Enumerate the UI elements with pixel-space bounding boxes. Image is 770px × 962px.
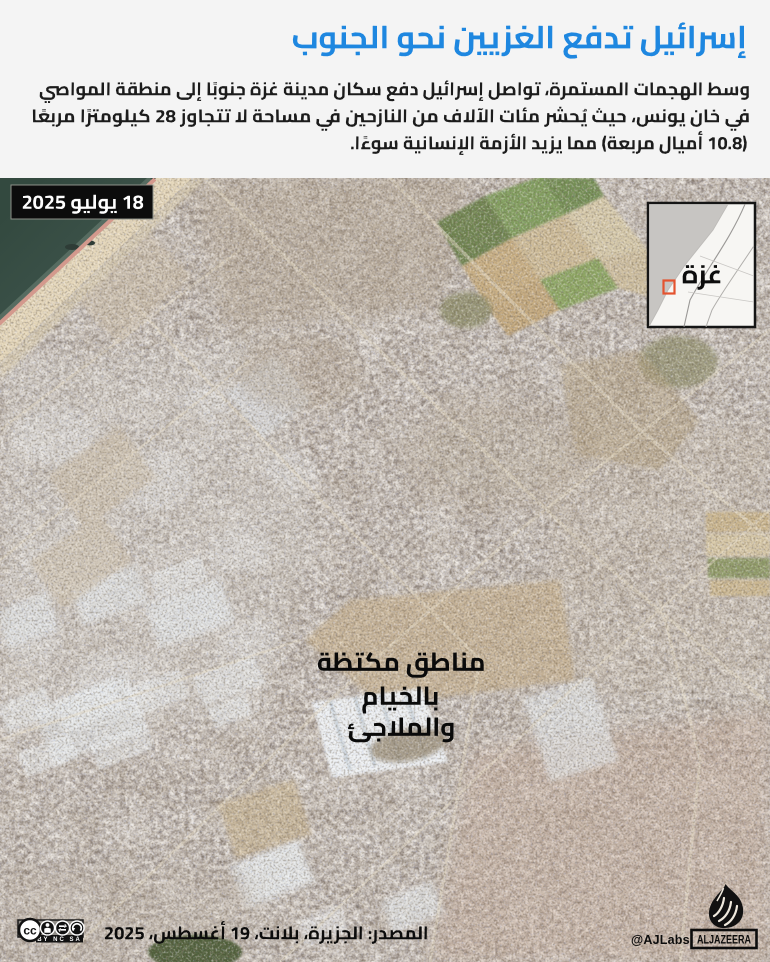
svg-text:ALJAZEERA: ALJAZEERA (697, 933, 751, 947)
svg-text:@AJLabs: @AJLabs (631, 933, 690, 947)
svg-text:cc: cc (23, 924, 37, 938)
svg-text:BY NC SA: BY NC SA (37, 937, 82, 943)
